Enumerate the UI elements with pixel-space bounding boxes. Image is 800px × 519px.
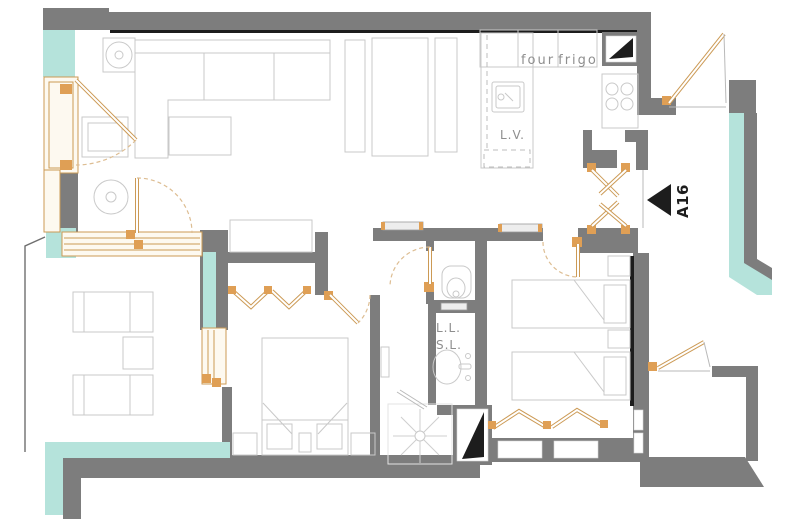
sink-icon [492, 82, 524, 112]
bedroom1-door [324, 291, 370, 323]
balcony-edge-line [25, 237, 45, 452]
closet-folding-doors [228, 286, 311, 307]
dining-bench-right [435, 38, 457, 152]
wall-loggia-bottom [640, 457, 764, 487]
glass-pier [203, 252, 216, 329]
dishwasher-label: L.V. [500, 128, 525, 142]
wall-bath-left-c [428, 300, 436, 405]
wall-walkway-block [729, 80, 756, 113]
bedroom2-glazing-line [630, 256, 634, 406]
kitchen: four frigo L.V. [480, 30, 640, 168]
bedroom1-window [202, 328, 226, 387]
glass-top-left [43, 30, 75, 77]
floor-lamp-icon [103, 38, 135, 72]
bedroom2-window [498, 441, 542, 458]
toilet-icon [442, 266, 471, 298]
dining-table [372, 38, 428, 156]
cooktop-icon [602, 74, 638, 128]
bathroom: L.L. S.L. [433, 266, 471, 384]
sofa [135, 40, 330, 158]
french-window [44, 77, 136, 232]
balcony-door [137, 178, 192, 233]
shower-glass-door [397, 390, 427, 409]
closet-folding-doors [488, 410, 608, 429]
wall-closet-jamb [315, 232, 328, 295]
wall-bedroom1-top [225, 252, 317, 263]
fridge-label: frigo [558, 53, 598, 68]
floorplan-page: four frigo L.V. L.L. S.L. [0, 0, 800, 519]
single-bed [512, 280, 630, 328]
coffee-table [169, 117, 231, 155]
shower-sliding-panel [381, 347, 389, 377]
wall-vestibule-d [636, 130, 648, 170]
upper-cabinet-return [484, 150, 530, 167]
washing-machine-label: L.L. [436, 321, 461, 335]
bedroom2-side-window [634, 433, 643, 453]
wall-bath-right [475, 241, 487, 415]
wall-bottom-main [222, 455, 480, 478]
dining-bench-left [345, 40, 365, 152]
single-bed [512, 352, 630, 400]
loggia-door [648, 342, 710, 371]
bedroom2-window [554, 441, 598, 458]
oven-label: four [521, 53, 555, 68]
wall-top [100, 12, 650, 30]
wall-loggia-right [746, 366, 758, 461]
kitchen-window [602, 32, 640, 66]
shower-window [453, 405, 492, 465]
balcony-window-band [62, 230, 202, 256]
nightstand [608, 330, 630, 348]
vestibule-double-doors [587, 163, 643, 234]
nightstand [233, 433, 257, 455]
bedroom2-door [543, 237, 582, 277]
armchair-seat [88, 123, 122, 151]
wall-living-left [60, 173, 78, 232]
wall-balcony-outer [63, 458, 233, 519]
side-table [123, 337, 153, 369]
walkway-door [662, 34, 726, 107]
nightstand [608, 256, 630, 276]
sun-lounger [73, 375, 153, 415]
bedroom-2 [488, 256, 643, 458]
shower-drain [415, 431, 425, 441]
bedroom2-side-window [634, 410, 643, 430]
balcony [62, 230, 202, 415]
sun-lounger [73, 292, 153, 332]
entrance: A16 [647, 184, 692, 218]
double-bed [262, 338, 348, 455]
sideboard [230, 220, 312, 252]
bathroom-sliding-door [441, 303, 467, 310]
floorplan-drawing: four frigo L.V. L.L. S.L. [0, 0, 800, 519]
round-stool-icon [94, 180, 128, 214]
entrance-arrow-icon [647, 184, 671, 216]
wall-bedroom1-right [370, 295, 380, 455]
washbasin-icon [433, 350, 471, 384]
wall-top-left-block [43, 8, 109, 30]
hall-sliding-doors [381, 222, 542, 377]
unit-label: A16 [674, 184, 692, 218]
bathroom-door [390, 247, 434, 292]
